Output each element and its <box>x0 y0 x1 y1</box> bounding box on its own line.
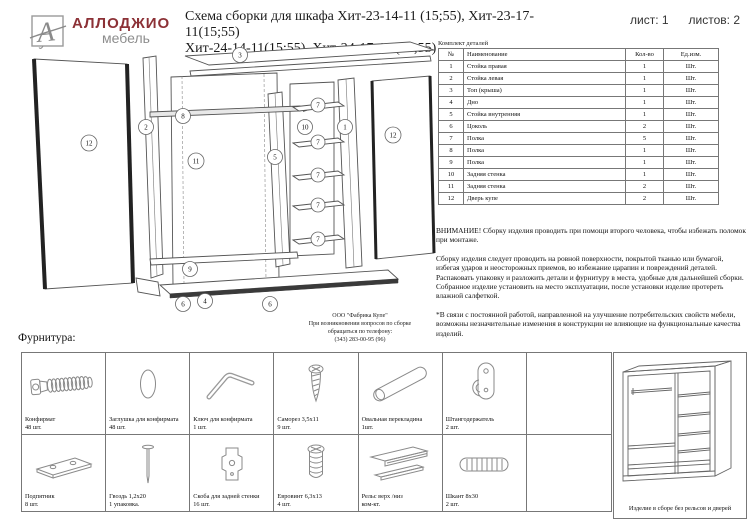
hardware-cell: Рельс верх /низком-кт. <box>359 435 443 511</box>
hardware-qty: 4 шт. <box>277 501 354 509</box>
svg-text:7: 7 <box>316 139 320 147</box>
factory-contact-note: ООО "Фабрика Купе" При возникновении воп… <box>285 312 435 344</box>
svg-text:2: 2 <box>144 124 148 132</box>
svg-text:7: 7 <box>316 172 320 180</box>
brand-name: АЛЛОДЖИО <box>72 17 180 31</box>
factory-phone: (343) 283-00-95 (96) <box>285 336 435 344</box>
part-callout: 12 <box>385 127 401 143</box>
cell-unit: Шт. <box>664 73 719 85</box>
warning-text: ВНИМАНИЕ! Сборку изделия проводить при п… <box>436 226 748 245</box>
cell-number: 5 <box>439 109 464 121</box>
euroscrew-icon <box>274 435 357 492</box>
assembly-notes: ВНИМАНИЕ! Сборку изделия проводить при п… <box>436 226 748 347</box>
hardware-qty: 48 шт. <box>25 424 102 432</box>
cell-unit: Шт. <box>664 121 719 133</box>
sheets-total: листов: 2 <box>689 13 740 27</box>
hardware-name: Саморез 3,5х11 <box>277 416 354 424</box>
exploded-assembly-diagram: 3 8 2 12 11 5 10 7 7 7 7 7 1 12 9 6 4 6 <box>10 38 445 353</box>
title-line-1: Схема сборки для шкафа Хит-23-14-11 (15;… <box>185 9 565 41</box>
rod-holder-icon <box>443 353 526 415</box>
part-callout: 11 <box>188 153 204 169</box>
hardware-name: Овальная перекладина <box>362 416 439 424</box>
hardware-name: Скоба для задней стенки <box>193 493 270 501</box>
sheet-number: лист: 1 <box>630 13 669 27</box>
cell-unit: Шт. <box>664 157 719 169</box>
hardware-cell: Заглушка для конфирмата48 шт. <box>106 353 190 435</box>
cell-qty: 1 <box>626 85 664 97</box>
nail-icon <box>106 435 189 492</box>
part-callout: 7 <box>311 98 325 112</box>
cell-unit: Шт. <box>664 133 719 145</box>
cell-qty: 2 <box>626 181 664 193</box>
part-callout: 5 <box>268 150 283 165</box>
hardware-cell-empty <box>527 353 611 435</box>
part-callout: 6 <box>263 297 278 312</box>
cell-number: 4 <box>439 97 464 109</box>
cell-unit: Шт. <box>664 109 719 121</box>
assembly-sheet-page: A АЛЛОДЖИО мебель Схема сборки для шкафа… <box>0 0 748 527</box>
cell-qty: 1 <box>626 73 664 85</box>
assembled-wardrobe-drawing <box>615 358 745 488</box>
part-callout: 3 <box>233 48 248 63</box>
cell-number: 8 <box>439 145 464 157</box>
svg-text:7: 7 <box>316 236 320 244</box>
part-callout: 7 <box>311 198 325 212</box>
cell-name: Дно <box>464 97 626 109</box>
table-row: 10Задняя стенка1Шт. <box>439 169 719 181</box>
cell-number: 10 <box>439 169 464 181</box>
hardware-qty: 9 шт. <box>277 424 354 432</box>
rail-icon <box>359 435 442 492</box>
part-callout: 10 <box>298 120 313 135</box>
svg-text:7: 7 <box>316 102 320 110</box>
svg-text:5: 5 <box>273 154 277 162</box>
cell-unit: Шт. <box>664 145 719 157</box>
part-callout: 8 <box>176 109 191 124</box>
cell-unit: Шт. <box>664 61 719 73</box>
cell-name: Задняя стенка <box>464 181 626 193</box>
hardware-name: Гвоздь 1,2х20 <box>109 493 186 501</box>
table-row: 6Цоколь2Шт. <box>439 121 719 133</box>
hardware-cell: Скоба для задней стенки16 шт. <box>190 435 274 511</box>
svg-text:7: 7 <box>316 202 320 210</box>
cell-name: Топ (крыша) <box>464 85 626 97</box>
part-callout: 9 <box>183 262 198 277</box>
hardware-qty: 48 шт. <box>109 424 186 432</box>
top-panel <box>185 42 434 76</box>
hardware-name: Штангодержатель <box>446 416 523 424</box>
cell-number: 6 <box>439 121 464 133</box>
hardware-cell: Овальная перекладина1шт. <box>359 353 443 435</box>
svg-text:10: 10 <box>302 124 310 132</box>
col-header-name: Наименование <box>464 49 626 61</box>
hardware-cell: Подпятник8 шт. <box>22 435 106 511</box>
svg-text:12: 12 <box>86 140 94 148</box>
part-callout: 7 <box>311 135 325 149</box>
hardware-qty: 2 шт. <box>446 424 523 432</box>
col-header-number: № <box>439 49 464 61</box>
cell-name: Стойка внутренняя <box>464 109 626 121</box>
assembled-caption: Изделие в сборе без рельсов и дверей <box>614 505 746 512</box>
factory-note-line: обращаться по телефону: <box>285 328 435 336</box>
cell-name: Полка <box>464 133 626 145</box>
hardware-cell: Евровинт 6,3х134 шт. <box>274 435 358 511</box>
hardware-name: Евровинт 6,3х13 <box>277 493 354 501</box>
part-callout: 6 <box>176 297 191 312</box>
cell-unit: Шт. <box>664 169 719 181</box>
col-header-qty: Кол-во <box>626 49 664 61</box>
note-paragraph: Распаковать упаковку и разложить детали … <box>436 273 748 282</box>
part-callout: 12 <box>81 135 97 151</box>
cell-number: 2 <box>439 73 464 85</box>
svg-text:9: 9 <box>188 266 192 274</box>
svg-text:6: 6 <box>268 301 272 309</box>
table-row: 1Стойка правая1Шт. <box>439 61 719 73</box>
cell-name: Цоколь <box>464 121 626 133</box>
cell-qty: 1 <box>626 61 664 73</box>
svg-text:8: 8 <box>181 113 185 121</box>
note-paragraph: Сборку изделия следует проводить на ровн… <box>436 254 748 273</box>
cell-qty: 1 <box>626 145 664 157</box>
cell-qty: 1 <box>626 169 664 181</box>
hardware-grid: Конфирмат48 шт. Заглушка для конфирмата4… <box>21 352 612 512</box>
factory-note-line: При возникновении вопросов по сборке <box>285 320 435 328</box>
note-paragraph: Собранное изделие установить на место эк… <box>436 282 748 301</box>
hardware-cell: Штангодержатель2 шт. <box>443 353 527 435</box>
table-row: 5Стойка внутренняя1Шт. <box>439 109 719 121</box>
hardware-name: Конфирмат <box>25 416 102 424</box>
cell-name: Стойка левая <box>464 73 626 85</box>
hardware-name: Ключ для конфирмата <box>193 416 270 424</box>
parts-table-caption: Комплект деталей <box>438 40 488 47</box>
cell-unit: Шт. <box>664 97 719 109</box>
hardware-qty: ком-кт. <box>362 501 439 509</box>
cell-number: 9 <box>439 157 464 169</box>
hardware-cell-empty <box>527 435 611 511</box>
hardware-section-title: Фурнитура: <box>18 332 76 344</box>
left-stand-panel <box>143 56 163 278</box>
right-door-panel <box>372 76 434 259</box>
hardware-qty: 16 шт. <box>193 501 270 509</box>
part-callout: 7 <box>311 232 325 246</box>
cell-number: 1 <box>439 61 464 73</box>
svg-text:11: 11 <box>193 158 200 166</box>
part-callout: 2 <box>139 120 154 135</box>
assembled-product-panel: Изделие в сборе без рельсов и дверей <box>613 352 747 519</box>
cell-qty: 1 <box>626 97 664 109</box>
cell-name: Стойка правая <box>464 61 626 73</box>
cell-name: Дверь купе <box>464 193 626 205</box>
confirmat-icon <box>22 353 105 415</box>
cap-icon <box>106 353 189 415</box>
hardware-cell: Гвоздь 1,2х201 упаковка. <box>106 435 190 511</box>
table-row: 3Топ (крыша)1Шт. <box>439 85 719 97</box>
disclaimer-text: *В связи с постоянной работой, направлен… <box>436 310 748 338</box>
dowel-icon <box>443 435 526 492</box>
part-callout: 4 <box>198 294 213 309</box>
table-row: 4Дно1Шт. <box>439 97 719 109</box>
cell-qty: 1 <box>626 109 664 121</box>
col-header-unit: Ед.изм. <box>664 49 719 61</box>
cell-name: Полка <box>464 157 626 169</box>
table-row: 9Полка1Шт. <box>439 157 719 169</box>
parts-table-header-row: № Наименование Кол-во Ед.изм. <box>439 49 719 61</box>
table-row: 2Стойка левая1Шт. <box>439 73 719 85</box>
cell-qty: 1 <box>626 157 664 169</box>
svg-text:6: 6 <box>181 301 185 309</box>
hardware-qty: 1 упаковка. <box>109 501 186 509</box>
hardware-name: Заглушка для конфирмата <box>109 416 186 424</box>
hex-key-icon <box>190 353 273 415</box>
cell-unit: Шт. <box>664 85 719 97</box>
cell-unit: Шт. <box>664 181 719 193</box>
cell-qty: 2 <box>626 193 664 205</box>
hardware-cell: Шкант 8х302 шт. <box>443 435 527 511</box>
parts-table: № Наименование Кол-во Ед.изм. 1Стойка пр… <box>438 48 719 205</box>
left-door-panel <box>34 59 133 289</box>
hardware-name: Подпятник <box>25 493 102 501</box>
hardware-qty: 1 шт. <box>193 424 270 432</box>
cell-number: 3 <box>439 85 464 97</box>
hardware-cell: Конфирмат48 шт. <box>22 353 106 435</box>
cell-qty: 2 <box>626 121 664 133</box>
part-callout: 7 <box>311 168 325 182</box>
table-row: 12Дверь купе2Шт. <box>439 193 719 205</box>
foot-pad-icon <box>22 435 105 492</box>
table-row: 7Полка5Шт. <box>439 133 719 145</box>
hardware-name: Рельс верх /низ <box>362 493 439 501</box>
table-row: 8Полка1Шт. <box>439 145 719 157</box>
cell-number: 11 <box>439 181 464 193</box>
hardware-qty: 8 шт. <box>25 501 102 509</box>
hardware-cell: Саморез 3,5х119 шт. <box>274 353 358 435</box>
cell-name: Полка <box>464 145 626 157</box>
cell-unit: Шт. <box>664 193 719 205</box>
hardware-name: Шкант 8х30 <box>446 493 523 501</box>
cell-number: 12 <box>439 193 464 205</box>
hardware-cell: Ключ для конфирмата1 шт. <box>190 353 274 435</box>
factory-name: ООО "Фабрика Купе" <box>285 312 435 320</box>
cell-number: 7 <box>439 133 464 145</box>
bracket-icon <box>190 435 273 492</box>
svg-text:1: 1 <box>343 124 347 132</box>
svg-text:12: 12 <box>390 132 398 140</box>
hardware-qty: 1шт. <box>362 424 439 432</box>
oval-bar-icon <box>359 353 442 415</box>
cell-name: Задняя стенка <box>464 169 626 181</box>
cell-qty: 5 <box>626 133 664 145</box>
hardware-qty: 2 шт. <box>446 501 523 509</box>
table-row: 11Задняя стенка2Шт. <box>439 181 719 193</box>
screw-icon <box>274 353 357 415</box>
svg-text:3: 3 <box>238 52 242 60</box>
svg-text:4: 4 <box>203 298 207 306</box>
part-callout: 1 <box>338 120 353 135</box>
